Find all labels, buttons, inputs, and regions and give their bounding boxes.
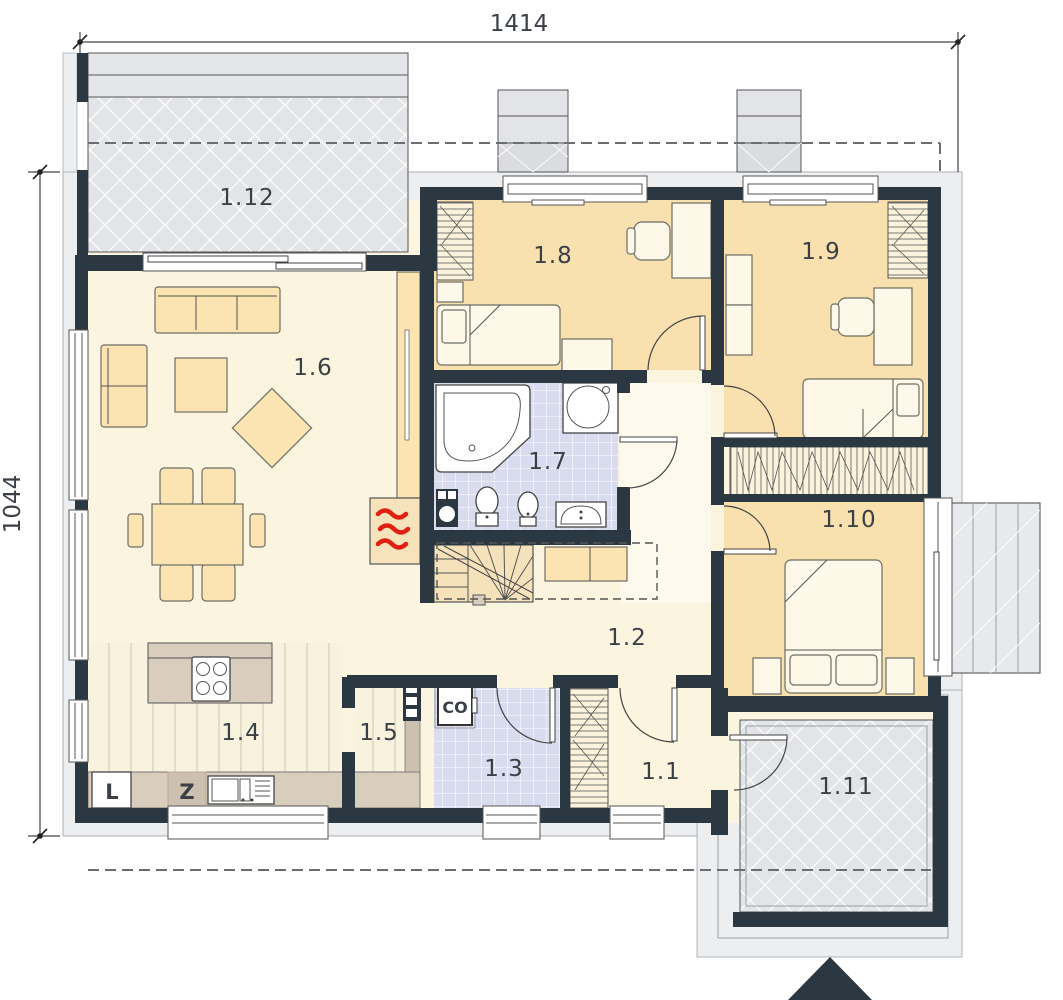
room-label-1-6: 1.6 [293,355,333,381]
boiler-label: CO [442,698,467,717]
desk-chair-1-8 [627,222,670,260]
shelf-1-9-a [726,255,752,305]
room-label-1-9: 1.9 [801,239,841,265]
bed-1-9 [803,379,923,438]
dimension-width-label: 1414 [490,11,549,37]
toilet-icon [476,487,498,526]
pergola-band-1 [88,53,408,75]
desk-1-9 [874,288,912,365]
window-1-9 [743,176,878,205]
desk-1-8 [672,203,711,278]
room-label-1-10: 1.10 [821,507,876,533]
nightstand-left [753,658,781,694]
coffee-table [175,358,227,412]
terrace-1-12 [88,97,408,252]
room-label-1-3: 1.3 [484,756,524,782]
sliding-terrace-door [143,253,366,271]
boiler: CO [435,684,477,728]
shower-icon [563,383,618,433]
washbasin-icon [556,502,606,527]
stair-newel [473,595,485,605]
room-label-1-8: 1.8 [533,243,573,269]
washing-machine-icon [436,489,458,527]
floor-plan-drawing: L Z [0,0,1063,1000]
floor-hall-nook [620,383,711,603]
bidet-icon [518,492,538,526]
wardrobe-between-1-9-1-10 [730,447,928,495]
wardrobe-1-9 [888,202,928,278]
window-1-8 [503,176,647,205]
window-bottom-kitchen [168,806,328,839]
staircase [434,545,533,605]
fridge-label: L [105,780,118,804]
wardrobe-1-1 [570,688,608,808]
room-label-1-12: 1.12 [219,185,274,211]
window-left-living [69,330,88,500]
pillow [897,384,919,416]
dishwasher: Z [168,772,206,808]
desk-chair-1-9 [831,298,874,336]
entrance-arrow-icon [788,957,872,1000]
bed-1-8 [437,305,560,365]
fireplace [370,498,420,564]
pergola-band-2 [88,75,408,97]
plaster-left-terrace [63,53,77,172]
floor-plan-page: L Z [0,0,1063,1000]
window-left-dining [69,510,88,660]
pillow [790,655,831,685]
kitchen-island [148,643,272,703]
porch-1-11 [740,720,933,912]
dimension-left: 1044 [0,165,60,843]
room-label-1-2: 1.2 [607,625,647,651]
room-label-1-7: 1.7 [528,449,568,475]
hall-cabinet [545,547,627,581]
dimension-height-label: 1044 [0,475,26,534]
fridge: L [92,772,131,808]
room-label-1-4: 1.4 [221,720,261,746]
shelf-1-9-b [726,305,752,355]
terrace-door-1-10 [924,498,952,676]
side-terrace [950,503,1040,673]
pillow [442,310,466,343]
armchair [101,345,147,427]
nightstand-1-8 [562,339,612,372]
chimney-1 [498,90,568,172]
sofa [155,287,280,333]
window-bottom-1-1 [610,806,664,839]
nightstand-right [886,658,914,694]
chimneys [498,90,801,172]
dining-table [152,504,243,565]
room-label-1-1: 1.1 [641,759,681,785]
chimney-2 [737,90,801,172]
room-label-1-11: 1.11 [818,774,873,800]
double-bed-1-10 [785,560,882,693]
dishwasher-label: Z [179,780,194,804]
window-left-kitchen [69,700,88,762]
window-bottom-1-3 [483,806,540,839]
tall-cabinet [397,272,420,498]
wardrobe-1-8 [437,202,473,280]
pantry-counter [405,714,420,772]
shelf-1-8 [437,282,463,302]
pillow [836,655,877,685]
room-label-1-5: 1.5 [359,720,399,746]
kitchen-sink-icon [208,776,274,804]
